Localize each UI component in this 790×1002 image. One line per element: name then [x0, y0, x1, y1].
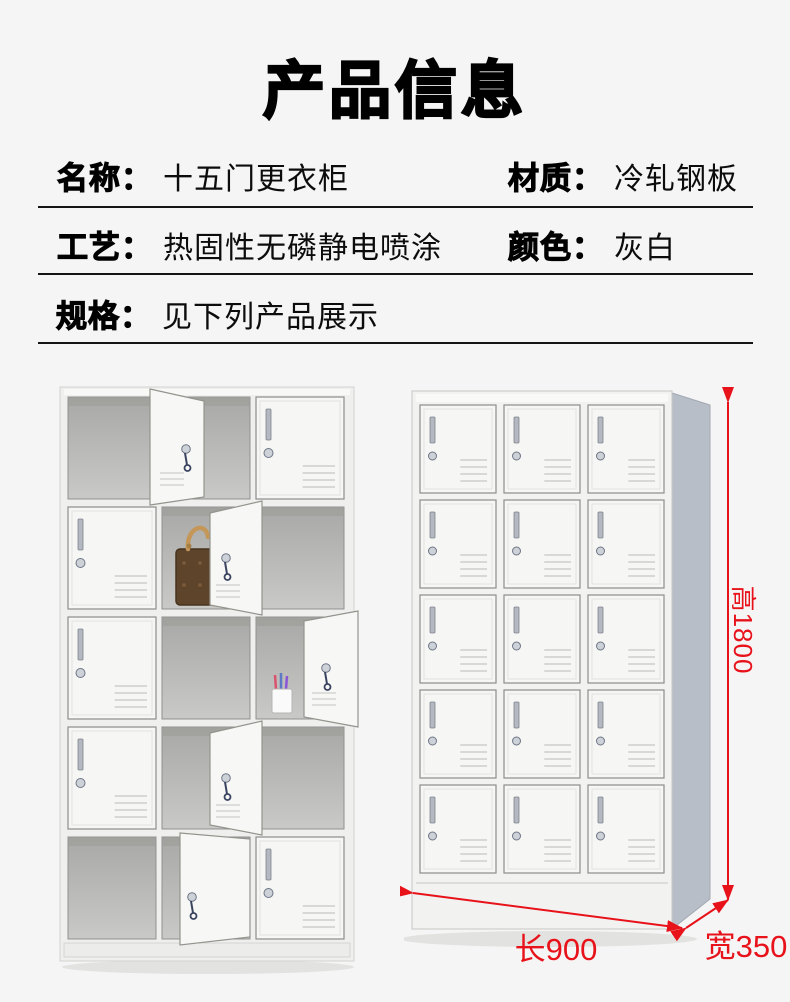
divider: [38, 342, 753, 344]
spec-color-label: 颜色：: [508, 222, 604, 267]
page-title: 产品信息: [0, 40, 790, 130]
dimension-width-label: 宽350: [702, 921, 790, 966]
dimension-height-label: 高1800: [733, 565, 763, 695]
divider: [38, 206, 753, 208]
spec-color-value: 灰白: [614, 223, 676, 267]
spec-row-color: 颜色： 灰白: [508, 222, 676, 267]
spec-process-label: 工艺：: [57, 222, 153, 267]
spec-material-label: 材质：: [508, 153, 604, 198]
spec-size-label: 规格：: [56, 291, 152, 336]
spec-process-value: 热固性无磷静电喷涂: [163, 223, 442, 267]
left-locker-image: [56, 385, 366, 980]
right-locker-image: [404, 381, 734, 966]
spec-row-process: 工艺： 热固性无磷静电喷涂: [57, 222, 442, 267]
spec-name-value: 十五门更衣柜: [163, 154, 349, 198]
spec-size-value: 见下列产品展示: [162, 292, 379, 336]
spec-name-label: 名称：: [57, 153, 153, 198]
spec-material-value: 冷轧钢板: [614, 154, 738, 198]
dimension-length-label: 长900: [500, 924, 612, 969]
spec-row-material: 材质： 冷轧钢板: [508, 153, 738, 198]
spec-row-name: 名称： 十五门更衣柜: [57, 153, 349, 198]
spec-row-size: 规格： 见下列产品展示: [56, 291, 379, 336]
divider: [38, 273, 753, 275]
